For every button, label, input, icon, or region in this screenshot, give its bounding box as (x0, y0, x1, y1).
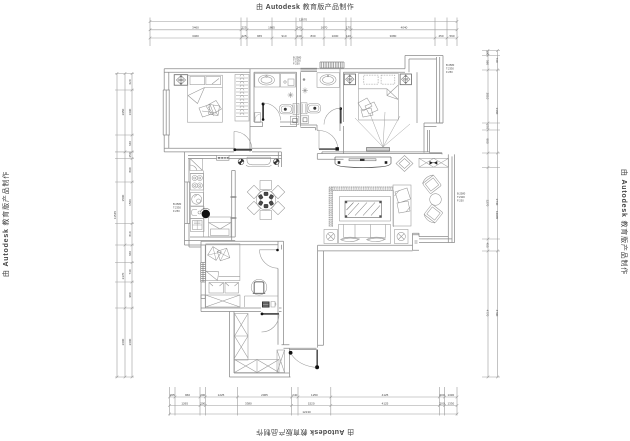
svg-text:225: 225 (241, 34, 246, 38)
svg-text:240: 240 (292, 393, 297, 397)
svg-text:1000: 1000 (332, 34, 339, 38)
svg-text:12965: 12965 (495, 211, 499, 220)
svg-text:4770: 4770 (485, 310, 489, 317)
svg-text:由 Autodesk 教育版产品制作: 由 Autodesk 教育版产品制作 (620, 169, 629, 275)
svg-text:965: 965 (257, 34, 262, 38)
svg-text:1520: 1520 (308, 402, 315, 406)
svg-text:200: 200 (200, 393, 205, 397)
svg-text:11545: 11545 (113, 211, 117, 219)
svg-text:620: 620 (128, 79, 132, 84)
svg-text:3460: 3460 (192, 34, 199, 38)
svg-text:170: 170 (346, 26, 351, 30)
svg-text:T:2330: T:2330 (446, 67, 454, 71)
svg-text:4790: 4790 (495, 310, 499, 317)
svg-text:1225: 1225 (218, 393, 225, 397)
svg-text:F:250: F:250 (293, 62, 300, 66)
svg-text:由 Autodesk 教育版产品制作: 由 Autodesk 教育版产品制作 (256, 428, 354, 437)
svg-text:T:2330: T:2330 (457, 195, 465, 199)
svg-text:740: 740 (128, 269, 132, 274)
svg-text:910: 910 (281, 34, 286, 38)
svg-text:240: 240 (296, 26, 301, 30)
svg-text:205: 205 (170, 393, 175, 397)
svg-text:1670: 1670 (321, 26, 328, 30)
svg-text:120: 120 (346, 34, 351, 38)
svg-text:3500: 3500 (121, 194, 125, 201)
svg-text:200: 200 (439, 402, 444, 406)
svg-text:640: 640 (128, 141, 132, 146)
svg-text:3380: 3380 (245, 402, 252, 406)
svg-text:590: 590 (485, 60, 489, 65)
svg-text:3270: 3270 (485, 200, 489, 207)
svg-text:1330: 1330 (447, 402, 454, 406)
svg-text:225: 225 (241, 26, 246, 30)
svg-text:4040: 4040 (401, 26, 408, 30)
svg-text:3160: 3160 (495, 108, 499, 115)
svg-text:4125: 4125 (382, 393, 389, 397)
svg-text:2010: 2010 (485, 93, 489, 100)
svg-text:2065: 2065 (261, 393, 268, 397)
svg-text:660: 660 (128, 251, 132, 256)
svg-text:1690: 1690 (128, 108, 132, 115)
svg-text:1250: 1250 (311, 393, 318, 397)
svg-text:B:2580: B:2580 (457, 192, 466, 196)
svg-text:F:250: F:250 (446, 70, 453, 74)
svg-text:250: 250 (128, 152, 132, 157)
svg-text:200: 200 (439, 393, 444, 397)
svg-text:F:250: F:250 (457, 199, 464, 203)
svg-text:980: 980 (128, 292, 132, 297)
svg-text:1330: 1330 (447, 393, 454, 397)
svg-text:2370: 2370 (121, 272, 125, 279)
svg-text:1265: 1265 (181, 402, 188, 406)
svg-text:455: 455 (485, 242, 489, 247)
svg-text:2600: 2600 (121, 338, 125, 345)
svg-text:3080: 3080 (390, 34, 397, 38)
svg-text:B:2580: B:2580 (173, 202, 182, 206)
svg-text:3740: 3740 (495, 199, 499, 206)
svg-text:由 Autodesk 教育版产品制作: 由 Autodesk 教育版产品制作 (1, 171, 10, 277)
svg-text:11670: 11670 (299, 17, 307, 21)
svg-text:B:2580: B:2580 (446, 63, 455, 67)
svg-text:190: 190 (485, 50, 489, 55)
svg-text:T:2330: T:2330 (173, 206, 181, 210)
svg-text:270: 270 (485, 124, 489, 129)
svg-text:810: 810 (128, 231, 132, 236)
svg-text:12130: 12130 (302, 410, 311, 414)
svg-text:450: 450 (438, 34, 443, 38)
svg-text:590: 590 (449, 34, 454, 38)
svg-text:F:250: F:250 (173, 209, 180, 213)
svg-text:830: 830 (310, 34, 315, 38)
svg-text:1865: 1865 (268, 26, 275, 30)
svg-text:由 Autodesk 教育版产品制作: 由 Autodesk 教育版产品制作 (256, 2, 354, 11)
svg-text:2600: 2600 (128, 338, 132, 345)
svg-text:960: 960 (185, 393, 190, 397)
svg-text:3460: 3460 (192, 26, 199, 30)
svg-text:4125: 4125 (382, 402, 389, 406)
svg-text:740: 740 (495, 57, 499, 62)
svg-text:2950: 2950 (121, 108, 125, 115)
svg-text:240: 240 (296, 34, 301, 38)
svg-text:1560: 1560 (128, 199, 132, 206)
svg-text:200: 200 (200, 402, 205, 406)
svg-text:880: 880 (485, 138, 489, 143)
svg-text:890: 890 (128, 167, 132, 172)
